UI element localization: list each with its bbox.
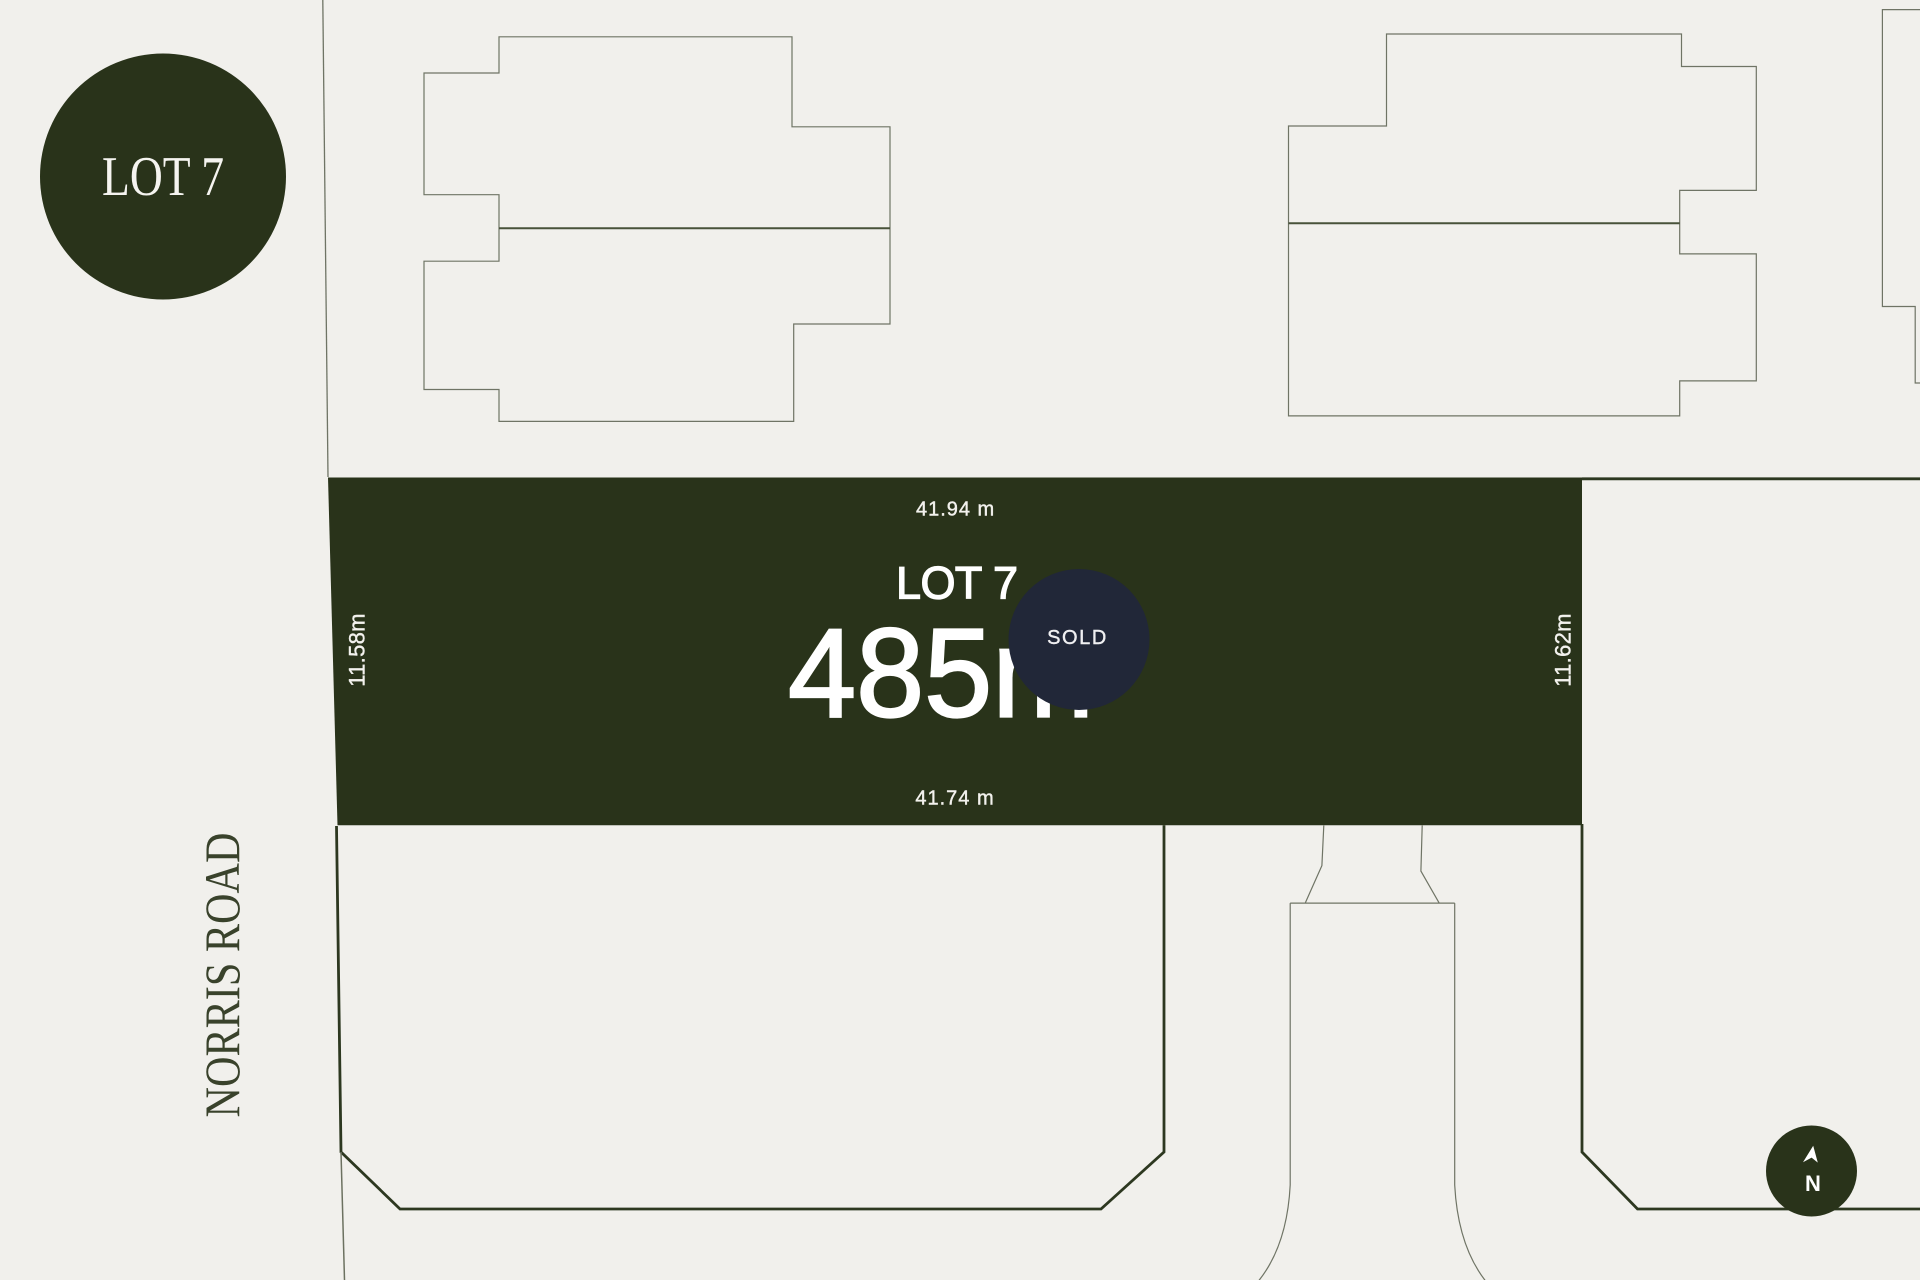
svg-text:11.62m: 11.62m	[1551, 613, 1576, 687]
svg-text:N: N	[1805, 1171, 1821, 1196]
svg-text:SOLD: SOLD	[1047, 627, 1108, 649]
svg-text:41.74 m: 41.74 m	[915, 788, 994, 810]
svg-text:11.58m: 11.58m	[345, 613, 370, 687]
svg-text:NORRIS ROAD: NORRIS ROAD	[194, 833, 250, 1118]
svg-text:LOT 7: LOT 7	[102, 146, 224, 208]
svg-text:LOT 7: LOT 7	[896, 558, 1018, 609]
svg-text:41.94 m: 41.94 m	[916, 499, 995, 521]
